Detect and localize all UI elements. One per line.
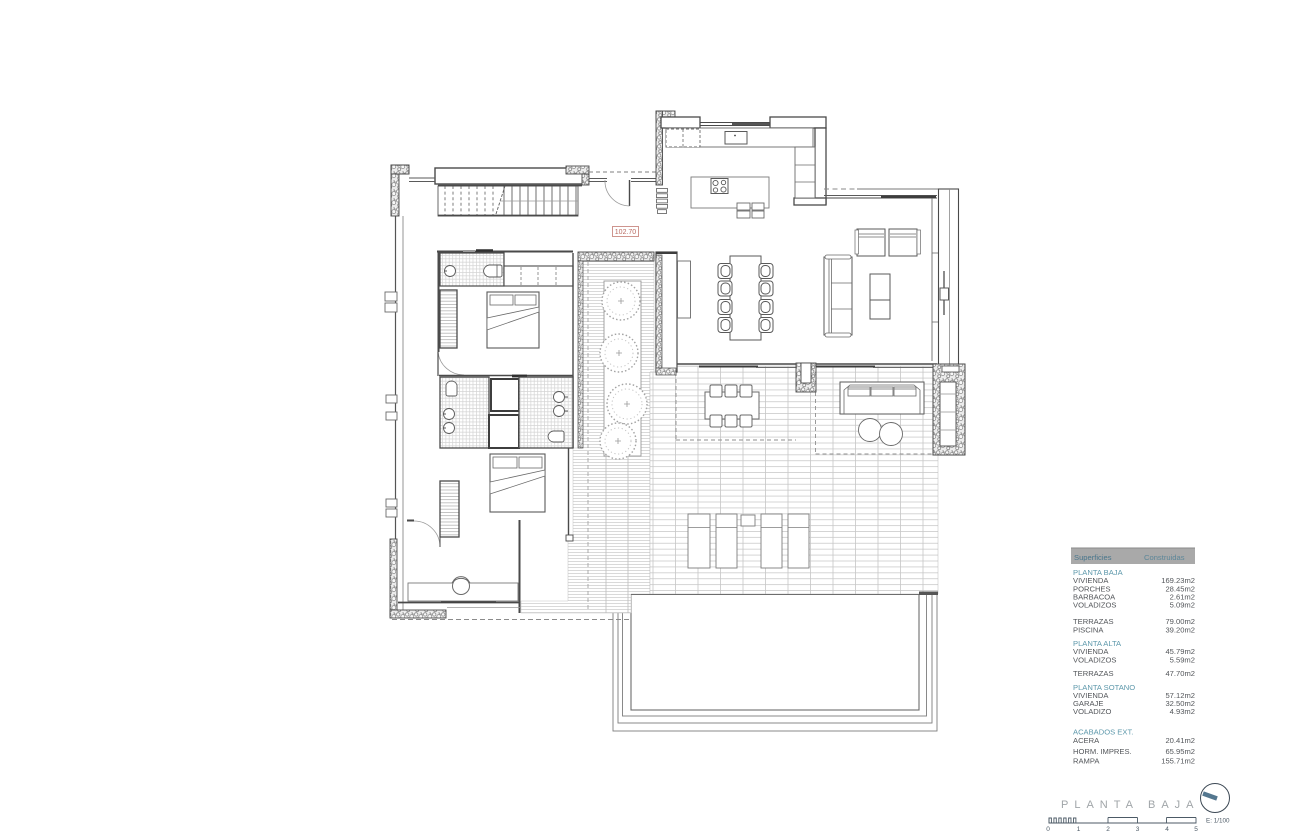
svg-text:5: 5	[1194, 826, 1198, 833]
svg-text:0: 0	[1046, 826, 1050, 833]
svg-text:HORM. IMPRES.: HORM. IMPRES.	[1073, 747, 1132, 756]
svg-text:Superficies: Superficies	[1074, 553, 1112, 562]
svg-text:BAJA: BAJA	[1148, 799, 1200, 811]
svg-text:5.09m2: 5.09m2	[1170, 601, 1195, 610]
svg-text:47.70m2: 47.70m2	[1165, 669, 1195, 678]
svg-text:ACERA: ACERA	[1073, 736, 1100, 745]
svg-text:3: 3	[1136, 826, 1140, 833]
svg-text:RAMPA: RAMPA	[1073, 757, 1100, 766]
svg-text:PISCINA: PISCINA	[1073, 626, 1104, 635]
svg-text:VOLADIZOS: VOLADIZOS	[1073, 601, 1116, 610]
svg-text:E: 1/100: E: 1/100	[1206, 818, 1230, 825]
svg-text:155.71m2: 155.71m2	[1161, 757, 1195, 766]
svg-text:5.59m2: 5.59m2	[1170, 656, 1195, 665]
svg-text:Construidas: Construidas	[1144, 553, 1185, 562]
svg-text:2: 2	[1106, 826, 1110, 833]
svg-text:4.93m2: 4.93m2	[1170, 707, 1195, 716]
svg-text:1: 1	[1077, 826, 1081, 833]
svg-text:TERRAZAS: TERRAZAS	[1073, 669, 1114, 678]
svg-text:39.20m2: 39.20m2	[1165, 626, 1195, 635]
svg-text:65.95m2: 65.95m2	[1165, 747, 1195, 756]
svg-text:VOLADIZOS: VOLADIZOS	[1073, 656, 1116, 665]
svg-text:PLANTA: PLANTA	[1061, 799, 1139, 811]
svg-text:VOLADIZO: VOLADIZO	[1073, 707, 1111, 716]
svg-text:102.70: 102.70	[615, 229, 637, 236]
svg-text:4: 4	[1165, 826, 1169, 833]
svg-text:20.41m2: 20.41m2	[1165, 736, 1195, 745]
